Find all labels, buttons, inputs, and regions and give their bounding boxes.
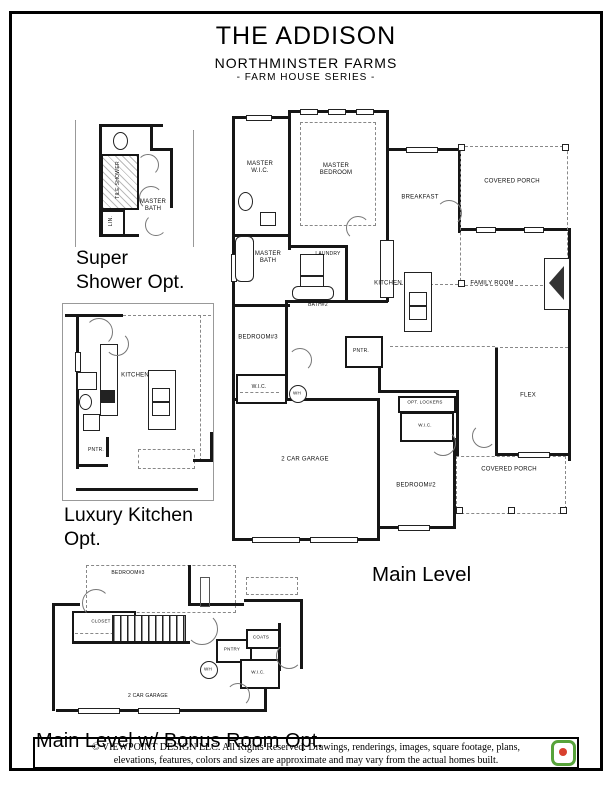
range-fixture (409, 306, 427, 320)
room-label-master-bath: MASTER BATH (253, 251, 283, 265)
caption-main-level: Main Level (372, 563, 471, 588)
community-name: NORTHMINSTER FARMS (0, 55, 612, 71)
window-marker (246, 115, 272, 121)
wall (495, 348, 498, 456)
room-label-wic-bedroom2: W.I.C. (418, 422, 431, 427)
room-label-garage: 2 CAR GARAGE (281, 456, 328, 463)
wall (76, 488, 198, 491)
copyright-line2: elevations, features, colors and sizes a… (35, 754, 577, 767)
copyright-box: © VIEWPOINT DESIGN LLC. All Rights Reser… (33, 737, 579, 769)
room-label-tile-shower: TILE SHOWER (115, 161, 121, 199)
room-label-pantry: PNTRY (224, 646, 240, 651)
room-label-water-heater: WH (204, 666, 212, 671)
bathtub-fixture (292, 286, 334, 300)
wall (300, 599, 303, 669)
room-label-pantry: PNTR. (353, 348, 369, 354)
room-label-pantry: PNTR. (88, 447, 104, 453)
garage-door-marker (252, 537, 300, 543)
range-fixture (409, 292, 427, 306)
wall (377, 398, 380, 541)
wall (232, 304, 290, 307)
luxury-kitchen-floorplan: KITCHEN PNTR. (62, 303, 214, 501)
porch-post (560, 507, 567, 514)
washer-fixture (300, 254, 324, 276)
window-marker (398, 525, 430, 531)
room-label-bedroom3: BEDROOM#3 (238, 334, 277, 341)
kitchen-cabinets (380, 240, 394, 298)
room-label-garage: 2 CAR GARAGE (128, 693, 168, 699)
room-label-bath2: BATH#2 (308, 302, 328, 308)
room-label-master-bedroom: MASTER BEDROOM (314, 163, 358, 177)
staircase (112, 615, 186, 643)
room-label-closet: CLOSET (91, 618, 110, 623)
wall (99, 124, 163, 127)
room-label-master-bath: MASTER BATH (137, 199, 169, 213)
door-arc (145, 214, 167, 236)
porch-post (508, 507, 515, 514)
toilet-fixture (113, 132, 128, 150)
crop-line (75, 120, 76, 247)
room-label-linen: LIN. (108, 216, 114, 226)
bathtub-fixture (235, 236, 254, 282)
door-arc (137, 154, 159, 176)
wall (72, 641, 190, 644)
room-label-coats: COATS (253, 634, 269, 639)
dashed-line (495, 347, 568, 348)
shelf-outline (246, 577, 298, 595)
door-arc (472, 424, 496, 448)
wall (232, 116, 235, 541)
porch-post (458, 144, 465, 151)
wall (188, 603, 244, 606)
bonus-room-floorplan: BEDROOM#3 CLOSET 2 CAR GARAGE PNTRY COAT… (48, 563, 320, 728)
toilet-fixture (79, 394, 92, 410)
series-name: - FARM HOUSE SERIES - (0, 72, 612, 83)
room-label-water-heater: WH (293, 390, 301, 395)
wall (378, 390, 458, 393)
room-label-family-room: FAMILY ROOM (470, 280, 513, 287)
crop-line (193, 130, 194, 247)
vanity-fixture (260, 212, 276, 226)
wall (456, 390, 459, 456)
caption-super-shower-line1: Super (76, 247, 128, 270)
caption-super-shower-line2: Shower Opt. (76, 271, 184, 294)
wall (170, 148, 173, 208)
viewpoint-design-logo (551, 740, 576, 766)
counter-outline (138, 449, 195, 469)
window-marker (524, 227, 544, 233)
window-marker (75, 352, 81, 372)
wall (210, 432, 213, 462)
range-fixture (152, 402, 170, 416)
window-marker (518, 452, 550, 458)
dashed-line (200, 315, 201, 461)
wall (52, 603, 55, 711)
wall (76, 464, 108, 467)
door-arc (436, 200, 462, 226)
page-title: THE ADDISON (0, 22, 612, 51)
porch-post (458, 280, 465, 287)
room-label-wic-bedroom3: W.I.C. (252, 384, 267, 390)
toilet-fixture (238, 192, 253, 211)
window-marker (476, 227, 496, 233)
brochure-page: THE ADDISON NORTHMINSTER FARMS - FARM HO… (0, 0, 612, 792)
wall (65, 314, 123, 317)
door-arc (85, 318, 113, 346)
door-arc (288, 348, 312, 372)
wall (188, 565, 191, 606)
wall (150, 124, 153, 148)
super-shower-floorplan: TILE SHOWER LIN. MASTER BATH (75, 120, 200, 248)
door-arc (276, 643, 302, 669)
dashed-line (390, 346, 495, 347)
linen-box (200, 577, 210, 607)
shelf-line (240, 392, 279, 393)
room-label-covered-porch-top: COVERED PORCH (484, 178, 540, 185)
room-label-kitchen: KITCHEN (121, 372, 149, 379)
wall (76, 437, 79, 467)
copyright-line1: © VIEWPOINT DESIGN LLC. All Rights Reser… (35, 741, 577, 754)
wall (288, 300, 388, 303)
room-label-kitchen: KITCHEN (374, 280, 402, 287)
wall (345, 245, 348, 303)
door-arc (346, 216, 370, 240)
covered-porch-outline (456, 456, 566, 514)
door-arc (186, 613, 218, 645)
room-label-opt-lockers: OPT. LOCKERS (407, 399, 442, 404)
room-label-master-wic: MASTER W.I.C. (245, 161, 275, 175)
window-marker (356, 109, 374, 115)
wall (52, 603, 80, 606)
dashed-line (123, 315, 211, 316)
room-label-laundry: LAUNDRY (315, 251, 340, 257)
garage-door-marker (138, 708, 180, 714)
window-marker (300, 109, 318, 115)
room-label-breakfast: BREAKFAST (401, 194, 438, 201)
wall (288, 245, 348, 248)
room-label-bedroom2: BEDROOM#2 (396, 482, 435, 489)
main-level-floorplan: MASTER W.I.C. MASTER BEDROOM BREAKFAST C… (228, 108, 576, 550)
window-marker (328, 109, 346, 115)
room-label-flex: FLEX (520, 392, 536, 399)
garage-door-marker (310, 537, 358, 543)
room-label-covered-porch-bottom: COVERED PORCH (481, 466, 537, 473)
caption-luxury-kitchen-line1: Luxury Kitchen (64, 504, 193, 527)
range-fixture (152, 388, 170, 402)
room-label-bedroom3: BEDROOM#3 (111, 570, 144, 576)
garage-door-marker (78, 708, 120, 714)
appliance-fixture (77, 372, 97, 390)
room-label-wic: W.I.C. (251, 669, 264, 674)
porch-post (456, 507, 463, 514)
logo-dot-icon (559, 748, 567, 756)
appliance-fixture (83, 414, 100, 431)
porch-post (562, 144, 569, 151)
door-arc (226, 683, 250, 707)
wall (244, 599, 302, 602)
wall (288, 110, 291, 250)
wall (106, 437, 109, 457)
range-fixture (100, 390, 115, 403)
caption-luxury-kitchen-line2: Opt. (64, 528, 101, 551)
window-marker (406, 147, 438, 153)
